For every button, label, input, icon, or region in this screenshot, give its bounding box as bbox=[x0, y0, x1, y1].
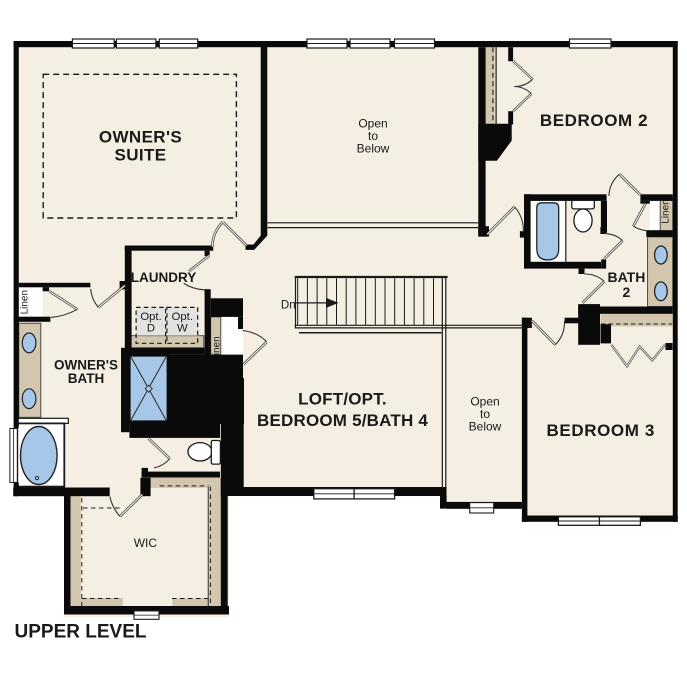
svg-text:SUITE: SUITE bbox=[114, 146, 166, 165]
svg-text:Opt.: Opt. bbox=[140, 311, 161, 323]
svg-text:W: W bbox=[177, 323, 188, 335]
svg-text:2: 2 bbox=[623, 284, 631, 300]
svg-text:Linen: Linen bbox=[660, 199, 671, 223]
svg-text:D: D bbox=[147, 323, 155, 335]
svg-text:WIC: WIC bbox=[134, 536, 158, 550]
svg-text:LOFT/OPT.: LOFT/OPT. bbox=[298, 390, 387, 409]
svg-text:Below: Below bbox=[357, 142, 390, 156]
svg-text:BATH: BATH bbox=[607, 269, 645, 285]
svg-text:Dn: Dn bbox=[281, 300, 296, 312]
svg-text:BEDROOM 5/BATH 4: BEDROOM 5/BATH 4 bbox=[257, 411, 428, 430]
svg-text:BEDROOM 2: BEDROOM 2 bbox=[540, 111, 648, 130]
svg-text:Opt.: Opt. bbox=[172, 311, 193, 323]
svg-text:UPPER LEVEL: UPPER LEVEL bbox=[15, 622, 147, 643]
svg-text:OWNER'S: OWNER'S bbox=[99, 128, 182, 147]
svg-text:BEDROOM 3: BEDROOM 3 bbox=[547, 421, 655, 440]
svg-text:LAUNDRY: LAUNDRY bbox=[131, 270, 197, 285]
svg-text:Below: Below bbox=[469, 420, 502, 434]
svg-text:BATH: BATH bbox=[68, 371, 105, 386]
svg-text:Linen: Linen bbox=[19, 290, 30, 314]
